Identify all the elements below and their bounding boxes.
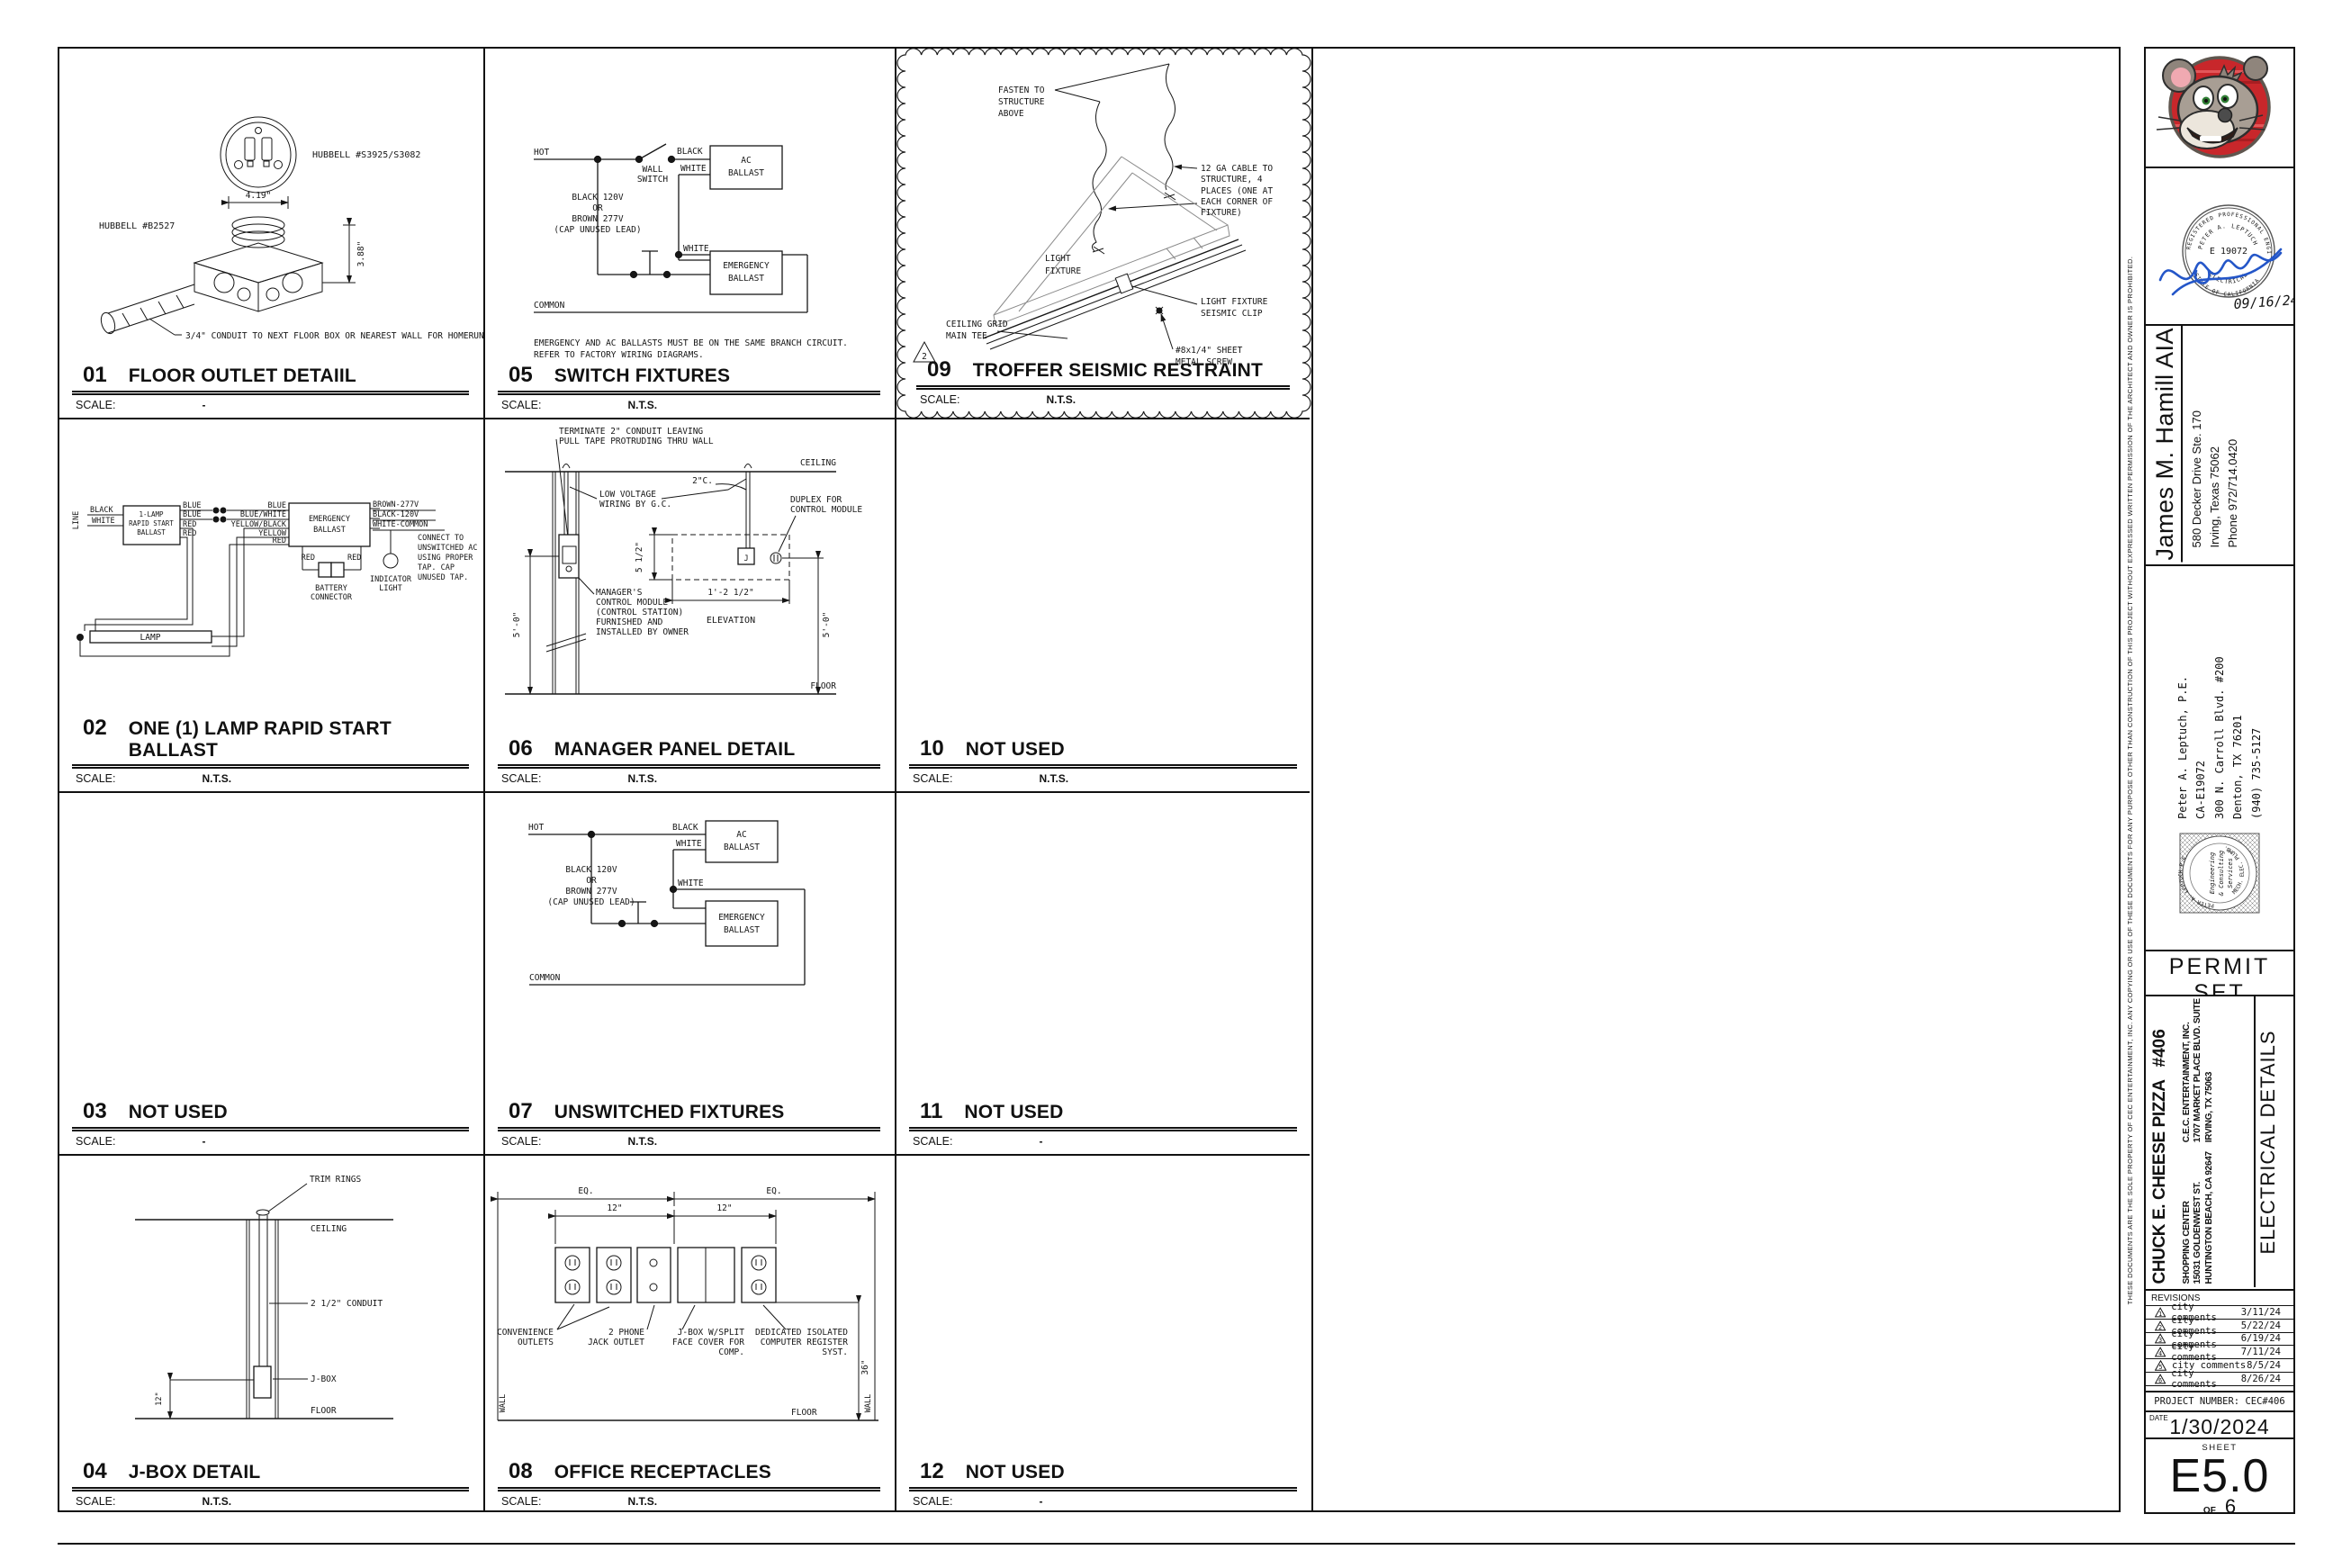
detail-title: J-BOX DETAIL [129, 1462, 261, 1483]
date-label: DATE [2149, 1414, 2168, 1422]
detail-title: NOT USED [966, 1462, 1065, 1483]
label-tap: WHITE-COMMON [373, 520, 428, 529]
label-phone: JACK OUTLET [588, 1338, 644, 1347]
detail-title: OFFICE RECEPTACLES [554, 1462, 771, 1483]
detail-02-cell: LINE BLACK WHITE 1-LAMP RAPID START BALL… [59, 419, 483, 791]
label-fasten: FASTEN TO [998, 86, 1045, 95]
label-cable: 12 GA CABLE TO [1201, 164, 1273, 174]
detail-02-titlebar: 02ONE (1) LAMP RAPID START BALLAST SCALE… [72, 716, 469, 788]
dim-5-half: 5 1/2" [635, 542, 644, 572]
signature-date: 09/16/24 [2233, 292, 2293, 312]
dim-5-0-right: 5'-0" [822, 612, 832, 638]
stamp-number: E 19072 [2210, 247, 2247, 257]
label-low-voltage: LOW VOLTAGE [599, 490, 656, 500]
label-wall-switch: WALL [643, 165, 663, 175]
revision-triangle-icon: 4 [2155, 1347, 2166, 1357]
label-duplex: DUPLEX FOR [790, 495, 842, 505]
label-trim-rings: TRIM RINGS [310, 1175, 361, 1185]
revision-triangle-icon: 6 [2155, 1374, 2166, 1384]
dim-5-0-left: 5'-0" [512, 612, 522, 638]
detail-01-titlebar: 01FLOOR OUTLET DETAIIL SCALE:- [72, 363, 469, 414]
detail-number: 06 [509, 736, 533, 761]
detail-05-cell: HOT BLACK WALL SWITCH BLACK 120V OR BROW… [485, 49, 895, 418]
label-out: BLUE [183, 510, 201, 519]
scale-value: - [1039, 1495, 1042, 1508]
detail-title: FLOOR OUTLET DETAIIL [129, 365, 356, 387]
label-cable: PLACES (ONE AT [1201, 186, 1273, 196]
label-hot: HOT [528, 823, 544, 833]
label-ballast: 1-LAMP [139, 510, 164, 518]
label-em-ballast: BALLAST [728, 274, 764, 284]
label-duplex: CONTROL MODULE [790, 505, 862, 515]
label-manager: MANAGER'S [596, 588, 643, 598]
dim-width: 4.19" [246, 191, 272, 201]
tee-linework [914, 239, 1246, 362]
scale-label: SCALE: [913, 1495, 952, 1508]
label-mid: BLUE [268, 501, 286, 510]
troffer-linework [1055, 64, 1197, 254]
label-split-jbox: J-BOX W/SPLIT [678, 1328, 745, 1338]
scale-label: SCALE: [76, 772, 115, 785]
label-conduit: 2 1/2" CONDUIT [311, 1299, 383, 1309]
label-hubbell-box: HUBBELL #B2527 [99, 221, 175, 231]
label-black: BLACK [677, 147, 703, 157]
label-voltage: (CAP UNUSED LEAD) [547, 897, 635, 907]
label-black: BLACK [90, 506, 113, 515]
label-indicator: INDICATOR [370, 575, 412, 584]
seal-center: & Consulting [2218, 851, 2225, 897]
detail-03-titlebar: 03NOT USED SCALE:- [72, 1099, 469, 1150]
scale-label: SCALE: [501, 1135, 541, 1148]
architect-address: Irving, Texas 75062 [2206, 329, 2224, 547]
detail-number: 11 [920, 1099, 942, 1124]
note-terminate: TERMINATE 2" CONDUIT LEAVING [559, 427, 703, 437]
detail-05-diagram: HOT BLACK WALL SWITCH BLACK 120V OR BROW… [485, 49, 895, 362]
scale-label: SCALE: [920, 393, 959, 406]
label-ac-ballast: AC [736, 830, 746, 840]
detail-01-cell: HUBBELL #S3925/S3082 HUBBELL #B2527 4.19… [59, 49, 483, 418]
label-clip: LIGHT FIXTURE [1201, 297, 1268, 307]
scale-value: - [202, 399, 205, 411]
label-dedicated: COMPUTER REGISTER [761, 1338, 849, 1347]
label-jbox: J [743, 554, 748, 563]
label-white: WHITE [683, 244, 709, 254]
dim-12: 12" [716, 1203, 732, 1213]
revision-row: 6 city comments 8/26/24 [2146, 1373, 2293, 1386]
detail-title: NOT USED [964, 1102, 1063, 1123]
detail-number: 04 [83, 1459, 107, 1484]
project-site-address: SHOPPING CENTER [2182, 1151, 2193, 1284]
detail-number: 07 [509, 1099, 533, 1124]
label-voltage: BROWN 277V [572, 214, 623, 224]
label-split-jbox: FACE COVER FOR [672, 1338, 744, 1347]
label-2c: 2"C. [692, 476, 713, 486]
detail-09-titlebar: 09TROFFER SEISMIC RESTRAINT SCALE:N.T.S. [916, 357, 1290, 409]
receptacle-linework [498, 1192, 878, 1420]
label-out: RED [183, 529, 196, 538]
owner-address: IRVING, TX 75063 [2204, 996, 2216, 1142]
detail-number: 05 [509, 363, 533, 388]
disclaimer-text: THESE DOCUMENTS ARE THE SOLE PROPERTY OF… [2119, 47, 2142, 1514]
engineer-line: Peter A. Leptuch, P.E. [2174, 656, 2192, 819]
dim-height: 3.88" [356, 241, 366, 267]
detail-02-diagram: LINE BLACK WHITE 1-LAMP RAPID START BALL… [59, 419, 483, 730]
label-floor: FLOOR [810, 681, 836, 691]
scale-value: N.T.S. [627, 399, 657, 411]
detail-09-cell: FASTEN TO STRUCTURE ABOVE 12 GA CABLE TO… [896, 49, 1311, 418]
label-white: WHITE [676, 839, 702, 849]
label-red: RED [347, 554, 361, 563]
dim-12: 12" [607, 1203, 622, 1213]
revision-number: 2 [2158, 1323, 2162, 1330]
label-dedicated: DEDICATED ISOLATED [755, 1328, 848, 1338]
sheet-of-label: OF [2203, 1506, 2216, 1512]
label-line: LINE [72, 511, 81, 529]
drawing-sheet: HUBBELL #S3925/S3082 HUBBELL #B2527 4.19… [0, 0, 2333, 1568]
detail-number: 10 [920, 736, 944, 761]
detail-number: 01 [83, 363, 107, 388]
engineer-line: (940) 735-5127 [2247, 656, 2265, 819]
engineer-line: 300 N. Carroll Blvd. #200 [2211, 656, 2229, 819]
detail-08-cell: EQ. EQ. 12" 12" CONVENIENCE OUTLETS 2 PH… [485, 1156, 895, 1514]
project-store-number: #406 [2150, 1029, 2170, 1067]
detail-number: 09 [927, 357, 951, 383]
scale-value: N.T.S. [627, 1495, 657, 1508]
pe-stamp: REGISTERED PROFESSIONAL ENGINEER PETER A… [2146, 168, 2293, 324]
label-ac-ballast: BALLAST [728, 168, 764, 178]
label-em-ballast: BALLAST [724, 925, 760, 935]
label-out: RED [183, 520, 196, 529]
chuck-e-cheese-logo-icon [2146, 49, 2293, 167]
detail-01-diagram: HUBBELL #S3925/S3082 HUBBELL #B2527 4.19… [59, 49, 483, 356]
label-em-ballast: EMERGENCY [309, 515, 350, 524]
label-cable: STRUCTURE, 4 [1201, 175, 1263, 185]
label-fixture: LIGHT [1045, 254, 1071, 264]
detail-number: 03 [83, 1099, 107, 1124]
detail-03-cell: 03NOT USED SCALE:- [59, 793, 483, 1154]
detail-06-titlebar: 06MANAGER PANEL DETAIL SCALE:N.T.S. [498, 736, 880, 788]
label-voltage: BLACK 120V [572, 193, 623, 203]
label-em-ballast: BALLAST [313, 526, 346, 535]
dim-eq: EQ. [578, 1186, 593, 1196]
note-connect: UNSWITCHED AC [418, 544, 478, 553]
detail-08-diagram: EQ. EQ. 12" 12" CONVENIENCE OUTLETS 2 PH… [485, 1156, 895, 1453]
detail-number: 12 [920, 1459, 944, 1484]
scale-value: N.T.S. [627, 772, 657, 785]
label-ceiling: CEILING [311, 1224, 347, 1234]
label-black: BLACK [672, 823, 698, 833]
label-phone: 2 PHONE [608, 1328, 644, 1338]
label-white: WHITE [680, 164, 707, 174]
detail-07-cell: HOT BLACK WHITE WHITE AC BALLAST BLACK 1… [485, 793, 895, 1154]
detail-08-titlebar: 08OFFICE RECEPTACLES SCALE:N.T.S. [498, 1459, 880, 1510]
fixture-linework [994, 157, 1230, 326]
detail-title: TROFFER SEISMIC RESTRAINT [973, 360, 1263, 382]
detail-10-cell: 10NOT USED SCALE:N.T.S. [896, 419, 1311, 791]
label-low-voltage: WIRING BY G.C. [599, 500, 671, 509]
label-white: WHITE [92, 517, 115, 526]
grid-line [1311, 49, 1313, 1510]
sheet-number: E5.0 [2146, 1453, 2293, 1500]
owner-address: 1707 MARKET PLACE BLVD. SUITE 200 [2193, 996, 2204, 1142]
detail-04-diagram: TRIM RINGS CEILING 2 1/2" CONDUIT J-BOX … [59, 1156, 483, 1453]
revision-date: 7/11/24 [2241, 1347, 2281, 1357]
date-cell: DATE 1/30/2024 [2146, 1412, 2293, 1439]
label-fasten: STRUCTURE [998, 97, 1045, 107]
scale-value: N.T.S. [627, 1135, 657, 1148]
scale-label: SCALE: [913, 772, 952, 785]
label-clip: SEISMIC CLIP [1201, 309, 1263, 319]
scale-value: N.T.S. [202, 1495, 231, 1508]
label-indicator: LIGHT [379, 584, 402, 593]
detail-title: UNSWITCHED FIXTURES [554, 1102, 785, 1123]
title-block: REGISTERED PROFESSIONAL ENGINEER PETER A… [2144, 47, 2295, 1514]
note-connect: UNUSED TAP. [418, 573, 468, 582]
label-ac-ballast: BALLAST [724, 843, 760, 852]
revision-note: city comments [2171, 1368, 2240, 1390]
detail-09-diagram: FASTEN TO STRUCTURE ABOVE 12 GA CABLE TO… [896, 49, 1311, 373]
label-em-ballast: EMERGENCY [718, 913, 765, 923]
label-tap: BROWN-277V [373, 500, 419, 509]
sheet-bottom-rule [58, 1543, 2295, 1545]
revision-number: 6 [2158, 1377, 2162, 1384]
note-connect: USING PROPER [418, 554, 473, 563]
detail-11-cell: 11NOT USED SCALE:- [896, 793, 1311, 1154]
dim-36: 36" [860, 1359, 870, 1374]
label-lamp: LAMP [140, 633, 161, 643]
detail-07-titlebar: 07UNSWITCHED FIXTURES SCALE:N.T.S. [498, 1099, 880, 1150]
sheet-cell: SHEET E5.0 OF 6 [2146, 1439, 2293, 1512]
seal-center: Services [2227, 858, 2234, 888]
label-common: COMMON [529, 973, 561, 983]
project-number-cell: PROJECT NUMBER: CEC#406 [2146, 1392, 2293, 1412]
label-cable: FIXTURE) [1201, 208, 1242, 218]
scale-label: SCALE: [76, 1495, 115, 1508]
engineer-line: Denton, TX 76201 [2229, 656, 2247, 819]
detail-number: 08 [509, 1459, 533, 1484]
label-voltage: BLACK 120V [565, 865, 617, 875]
label-ac-ballast: AC [741, 156, 751, 166]
revision-number: 4 [2158, 1350, 2162, 1357]
label-dedicated: SYST. [822, 1347, 848, 1357]
logo-cell [2146, 49, 2293, 168]
detail-number: 02 [83, 716, 107, 741]
stamp-cell: REGISTERED PROFESSIONAL ENGINEER PETER A… [2146, 168, 2293, 326]
detail-title: MANAGER PANEL DETAIL [554, 739, 796, 761]
label-hot: HOT [534, 148, 549, 158]
detail-04-titlebar: 04J-BOX DETAIL SCALE:N.T.S. [72, 1459, 469, 1510]
label-wall: WALL [499, 1394, 508, 1412]
revision-date: 6/19/24 [2241, 1333, 2281, 1344]
architect-cell: James M. Hamill AIA 580 Decker Drive Ste… [2146, 326, 2293, 566]
scale-label: SCALE: [913, 1135, 952, 1148]
revision-triangle-icon: 5 [2155, 1360, 2166, 1371]
project-cell: CHUCK E. CHEESE PIZZA #406 SHOPPING CENT… [2146, 996, 2293, 1291]
detail-title: NOT USED [129, 1102, 228, 1123]
label-white: WHITE [678, 879, 704, 888]
revision-number: 3 [2158, 1337, 2162, 1344]
architect-address: 580 Decker Drive Ste. 170 [2188, 329, 2206, 547]
detail-07-diagram: HOT BLACK WHITE WHITE AC BALLAST BLACK 1… [485, 793, 895, 1095]
engineer-line: CA-E19072 [2192, 656, 2210, 819]
scale-label: SCALE: [76, 399, 115, 411]
label-em-ballast: EMERGENCY [723, 261, 770, 271]
scale-value: N.T.S. [202, 772, 231, 785]
scale-label: SCALE: [76, 1135, 115, 1148]
drawing-field: HUBBELL #S3925/S3082 HUBBELL #B2527 4.19… [58, 47, 2121, 1512]
label-split-jbox: COMP. [718, 1347, 744, 1357]
label-voltage: (CAP UNUSED LEAD) [554, 225, 641, 235]
sheet-title-cell: ELECTRICAL DETAILS [2254, 996, 2292, 1287]
detail-12-titlebar: 12NOT USED SCALE:- [909, 1459, 1297, 1510]
scale-value: - [1039, 1135, 1042, 1148]
project-name: CHUCK E. CHEESE PIZZA [2150, 1079, 2170, 1284]
scale-value: N.T.S. [1046, 393, 1076, 406]
permit-set-cell: PERMIT SET THIS IS A PERMIT ISSUE SET AS… [2146, 951, 2293, 996]
note-connect: CONNECT TO [418, 534, 464, 543]
revision-triangle-icon: 3 [2155, 1333, 2166, 1344]
detail-title: SWITCH FIXTURES [554, 365, 731, 387]
label-mid: YELLOW/BLACK [231, 520, 287, 529]
label-wall: WALL [864, 1394, 873, 1412]
label-ballast: BALLAST [137, 528, 166, 536]
owner-address: C.E.C. ENTERTAINMENT, INC. [2182, 996, 2193, 1142]
label-tap: BLACK-120V [373, 510, 419, 519]
engineer-cell: PETER A. LEPTUCH P.E. MECH. ELEC. PLUMB.… [2146, 566, 2293, 951]
detail-06-diagram: TERMINATE 2" CONDUIT LEAVING PULL TAPE P… [485, 419, 895, 732]
revision-row: 4 city comments 7/11/24 [2146, 1346, 2293, 1359]
sheet-title: ELECTRICAL DETAILS [2256, 996, 2280, 1287]
label-hubbell-cover: HUBBELL #S3925/S3082 [312, 150, 420, 160]
revision-number: 5 [2158, 1364, 2162, 1371]
project-info: CHUCK E. CHEESE PIZZA #406 SHOPPING CENT… [2146, 996, 2254, 1287]
label-out: BLUE [183, 501, 201, 510]
label-elevation: ELEVATION [707, 616, 755, 626]
label-ceiling: CEILING [800, 458, 836, 468]
label-floor: FLOOR [791, 1408, 817, 1418]
note-terminate: PULL TAPE PROTRUDING THRU WALL [559, 437, 714, 446]
engineer-seal: PETER A. LEPTUCH P.E. MECH. ELEC. PLUMB.… [2178, 832, 2261, 915]
note: EMERGENCY AND AC BALLASTS MUST BE ON THE… [534, 338, 848, 348]
revision-date: 3/11/24 [2241, 1307, 2281, 1318]
project-site-address: HUNTINGTON BEACH, CA 92647 [2204, 1151, 2216, 1284]
dim-eq: EQ. [766, 1186, 781, 1196]
detail-title: NOT USED [966, 739, 1065, 761]
revision-date: 8/26/24 [2241, 1374, 2281, 1384]
label-convenience: CONVENIENCE [497, 1328, 554, 1338]
label-red: RED [302, 554, 315, 563]
revision-triangle-icon: 1 [2155, 1307, 2166, 1318]
detail-11-titlebar: 11NOT USED SCALE:- [909, 1099, 1297, 1150]
label-conduit-note: 3/4" CONDUIT TO NEXT FLOOR BOX OR NEARES… [185, 331, 483, 341]
label-wall-switch: SWITCH [637, 175, 669, 185]
manager-panel-linework [505, 439, 836, 694]
label-manager: INSTALLED BY OWNER [596, 627, 689, 637]
note: REFER TO FACTORY WIRING DIAGRAMS. [534, 350, 704, 360]
revision-number: 1 [2158, 1311, 2162, 1318]
label-convenience: OUTLETS [518, 1338, 554, 1347]
scale-label: SCALE: [501, 399, 541, 411]
label-grid-tee: CEILING GRID [946, 320, 1008, 329]
scale-value: N.T.S. [1039, 772, 1068, 785]
label-manager: CONTROL MODULE [596, 598, 668, 608]
label-ballast: RAPID START [129, 519, 174, 527]
label-voltage: OR [592, 203, 603, 213]
label-grid-tee: MAIN TEE [946, 331, 987, 341]
label-battery: BATTERY [315, 584, 347, 593]
label-cable: EACH CORNER OF [1201, 197, 1273, 207]
detail-10-titlebar: 10NOT USED SCALE:N.T.S. [909, 736, 1297, 788]
dim-12: 12" [155, 1392, 164, 1405]
label-mid: RED [273, 536, 286, 545]
label-voltage: OR [586, 876, 597, 886]
label-manager: FURNISHED AND [596, 617, 663, 627]
label-fasten: ABOVE [998, 109, 1024, 119]
revision-date: 8/5/24 [2247, 1360, 2281, 1371]
scale-label: SCALE: [501, 772, 541, 785]
revisions-cell: REVISIONS 1 city comments 3/11/24 2 city… [2146, 1291, 2293, 1392]
detail-06-cell: TERMINATE 2" CONDUIT LEAVING PULL TAPE P… [485, 419, 895, 791]
detail-12-cell: 12NOT USED SCALE:- [896, 1156, 1311, 1514]
revision-date: 5/22/24 [2241, 1320, 2281, 1331]
detail-04-cell: TRIM RINGS CEILING 2 1/2" CONDUIT J-BOX … [59, 1156, 483, 1514]
architect-address: Phone 972/714.0420 [2224, 329, 2242, 547]
detail-05-titlebar: 05SWITCH FIXTURES SCALE:N.T.S. [498, 363, 880, 414]
scale-label: SCALE: [501, 1495, 541, 1508]
label-battery: CONNECTOR [311, 593, 353, 602]
permit-set-title: PERMIT SET [2146, 954, 2293, 996]
seal-center: Engineering [2209, 852, 2216, 894]
label-mid: BLUE/WHITE [240, 510, 286, 519]
label-common: COMMON [534, 301, 565, 311]
note-connect: TAP. CAP [418, 563, 455, 572]
label-voltage: BROWN 277V [565, 887, 617, 897]
disclaimer-strip: THESE DOCUMENTS ARE THE SOLE PROPERTY OF… [2119, 47, 2142, 1514]
detail-title: ONE (1) LAMP RAPID START BALLAST [129, 718, 469, 761]
architect-name: James M. Hamill AIA [2151, 326, 2183, 562]
label-manager: (CONTROL STATION) [596, 608, 683, 617]
label-jbox: J-BOX [311, 1374, 337, 1384]
dim-1-2-half: 1'-2 1/2" [707, 588, 753, 598]
scale-value: - [202, 1135, 205, 1148]
project-site-address: 15031 GOLDENWEST ST. [2193, 1151, 2204, 1284]
project-number: PROJECT NUMBER: CEC#406 [2146, 1392, 2293, 1410]
revision-triangle-icon: 2 [2155, 1320, 2166, 1331]
sheet-total: 6 [2225, 1495, 2236, 1512]
label-screw: #8x1/4" SHEET [1176, 346, 1243, 356]
label-fixture: FIXTURE [1045, 266, 1081, 276]
label-floor: FLOOR [311, 1406, 337, 1416]
